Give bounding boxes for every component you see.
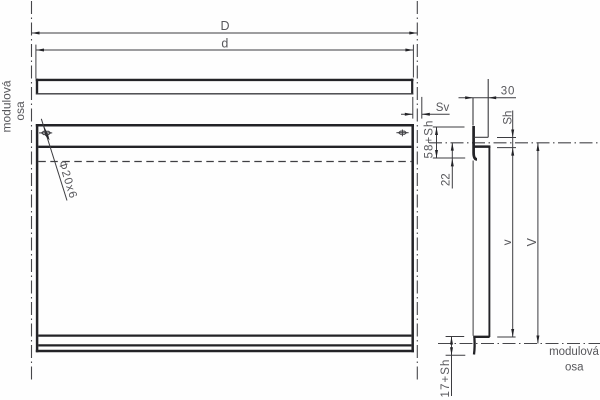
svg-text:V: V: [525, 237, 539, 246]
svg-text:modulová: modulová: [549, 346, 599, 358]
svg-text:osa: osa: [13, 101, 27, 121]
svg-text:osa: osa: [565, 362, 584, 374]
svg-text:30: 30: [501, 86, 515, 98]
svg-text:58+Sh: 58+Sh: [424, 119, 436, 158]
svg-text:Sh: Sh: [503, 111, 515, 125]
svg-text:v: v: [502, 239, 514, 245]
svg-text:22: 22: [441, 173, 453, 186]
svg-text:17+Sh: 17+Sh: [440, 358, 452, 397]
svg-text:Sv: Sv: [436, 102, 450, 114]
svg-text:D: D: [220, 19, 229, 33]
svg-text:modulová: modulová: [0, 80, 13, 132]
svg-text:d: d: [221, 37, 228, 51]
